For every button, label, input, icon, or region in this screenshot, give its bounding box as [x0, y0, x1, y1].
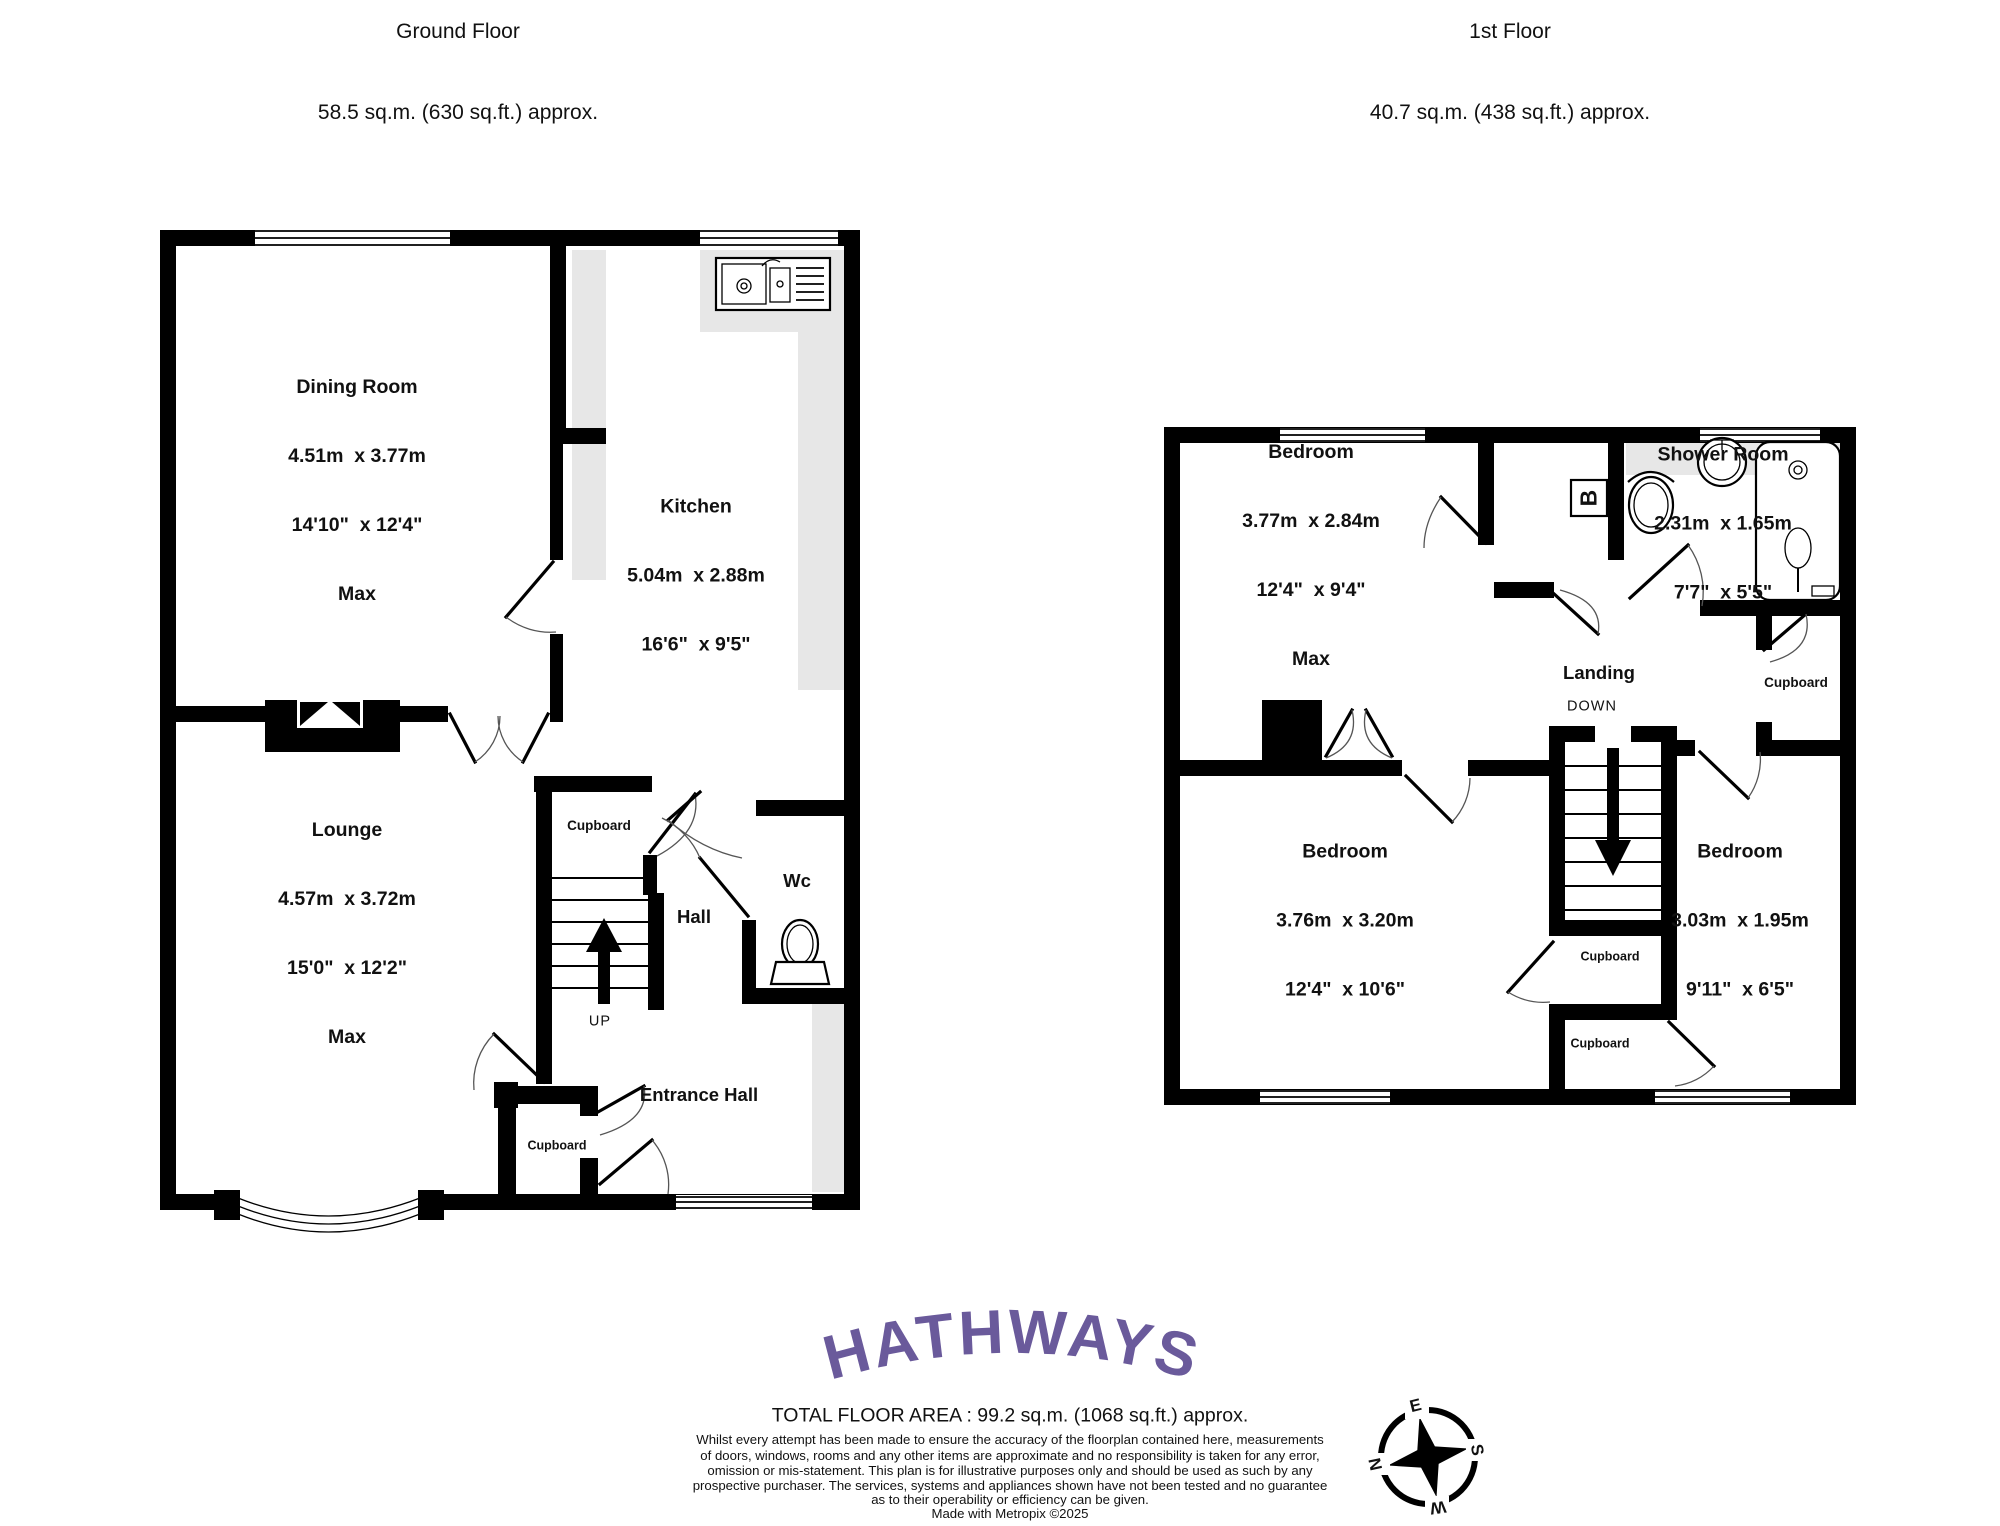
ground-floor-title: Ground Floor 58.5 sq.m. (630 sq.ft.) app…: [318, 0, 598, 181]
total-floor-area: TOTAL FLOOR AREA : 99.2 sq.m. (1068 sq.f…: [772, 1405, 1249, 1428]
front-door: [600, 1140, 669, 1194]
door-bedroom-small: [1700, 752, 1760, 798]
window: [676, 1195, 812, 1210]
bay-window: [214, 1190, 444, 1232]
kitchen-label: Kitchen 5.04m x 2.88m 16'6" x 9'5": [627, 450, 765, 703]
stairs-down-icon: [1565, 748, 1661, 910]
fireplace: [265, 700, 400, 752]
entrance-hall-label: Entrance Hall: [640, 1084, 758, 1106]
svg-text:HATHWAYS: HATHWAYS: [816, 1297, 1207, 1393]
wc-label: Wc: [783, 870, 811, 892]
window: [255, 229, 450, 247]
hathways-logo: HATHWAYS: [816, 1297, 1207, 1393]
double-door-lounge: [450, 714, 548, 762]
door-vestibule: [1552, 590, 1599, 634]
wardrobe-doors: [1326, 710, 1392, 758]
door-cupboard-mid-upper: [1508, 942, 1553, 1002]
down-label: DOWN: [1567, 698, 1617, 715]
disclaimer-line: omission or mis-statement. This plan is …: [707, 1463, 1312, 1479]
cupboard-mid-lower-label: Cupboard: [1570, 1037, 1629, 1052]
first-floor-title-line1: 1st Floor: [1370, 17, 1650, 44]
ground-floor-title-line1: Ground Floor: [318, 17, 598, 44]
disclaimer-line: of doors, windows, rooms and any other i…: [700, 1448, 1319, 1464]
door-bedroom-back: [1406, 776, 1470, 822]
stairs-up-icon: [552, 878, 648, 1004]
dining-room-label: Dining Room 4.51m x 3.77m 14'10" x 12'4"…: [288, 330, 426, 652]
window: [1655, 1090, 1790, 1104]
cupboard-landing-label: Cupboard: [1764, 675, 1828, 691]
floorplan-canvas: HATHWAYS: [0, 0, 2000, 1526]
compass-w: W: [1427, 1496, 1450, 1519]
bedroom-small-label: Bedroom 3.03m x 1.95m 9'11" x 6'5": [1671, 795, 1809, 1048]
window: [700, 229, 838, 247]
cupboard-mid-upper-label: Cupboard: [1580, 950, 1639, 965]
metropix-credit: Made with Metropix ©2025: [931, 1506, 1088, 1522]
door-kitchen-hall: [668, 792, 742, 858]
cupboard-stairs-label: Cupboard: [567, 818, 631, 834]
up-label: UP: [589, 1013, 611, 1030]
window: [1260, 1090, 1390, 1104]
ground-floor-plan: [160, 229, 860, 1232]
hall-label: Hall: [677, 906, 711, 928]
door-dining-kitchen: [506, 562, 556, 632]
boiler-label: B: [1575, 490, 1602, 507]
ground-floor-title-line2: 58.5 sq.m. (630 sq.ft.) approx.: [318, 99, 598, 126]
kitchen-sink-icon: [716, 258, 830, 310]
disclaimer-line: Whilst every attempt has been made to en…: [696, 1432, 1323, 1448]
first-floor-title-line2: 40.7 sq.m. (438 sq.ft.) approx.: [1370, 99, 1650, 126]
shower-room-label: Shower Room 2.31m x 1.65m 7'7" x 5'5": [1654, 398, 1792, 651]
lounge-label: Lounge 4.57m x 3.72m 15'0" x 12'2" Max: [278, 773, 416, 1095]
door-entrance-cupboard: [598, 1086, 645, 1135]
cupboard-entrance-label: Cupboard: [527, 1139, 586, 1154]
first-floor-title: 1st Floor 40.7 sq.m. (438 sq.ft.) approx…: [1370, 0, 1650, 181]
landing-label: Landing: [1563, 662, 1635, 684]
logo-text: HATHWAYS: [816, 1297, 1207, 1393]
kitchen-counter-areas: [572, 250, 844, 1192]
door-landing-bedroom-front: [1424, 497, 1486, 548]
door-lounge-entrance: [474, 1034, 544, 1090]
bedroom-front-label: Bedroom 3.77m x 2.84m 12'4" x 9'4" Max: [1242, 395, 1380, 717]
door-wc: [662, 818, 748, 916]
floorplan-page: HATHWAYS Ground Floor 58.5 sq.m. (630 sq…: [0, 0, 2000, 1526]
bedroom-back-label: Bedroom 3.76m x 3.20m 12'4" x 10'6": [1276, 795, 1414, 1048]
toilet-icon: [771, 920, 829, 984]
